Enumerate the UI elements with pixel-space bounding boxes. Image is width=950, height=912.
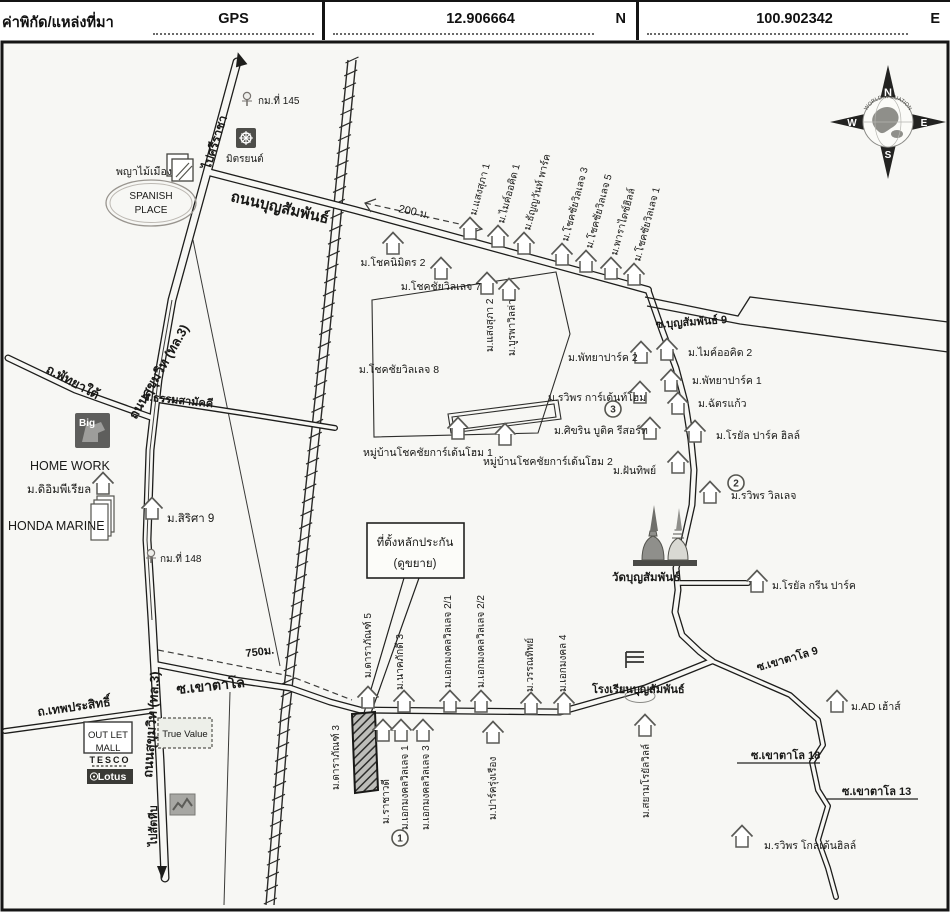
map-label: กม.ที่ 148 — [160, 551, 202, 565]
map-label: PLACE — [135, 205, 168, 216]
map-label: Lotus — [98, 771, 127, 783]
map-label: ม.ดิอิมพีเรียล — [27, 483, 91, 496]
map-label: SPANISH — [129, 191, 172, 202]
subject-callout-box: ที่ตั้งหลักประกัน(ดูขยาย) — [367, 523, 464, 578]
map-label: OUT LET — [88, 730, 128, 741]
appraisal-map-page: ค่าพิกัด/แหล่งที่มา GPS 12.906664 N 100.… — [0, 0, 950, 912]
map-label: ม.ดาราภัณฑ์ 5 — [362, 613, 374, 678]
map-label: กม.ที่ 145 — [258, 93, 300, 107]
map-label: ม.เอกมงคลวิลเลจ 3 — [421, 745, 432, 830]
map-label: ม.พัทยาปาร์ค 1 — [692, 374, 762, 387]
map-label: ม.รวิพร โกลเด้นฮิลล์ — [764, 839, 856, 852]
map-label: โรงเรียนบุญสัมพันธ์ — [591, 682, 685, 697]
map-label: ม.ไมค์ออคิด 2 — [688, 346, 752, 359]
map-label: ม.นาคภักดี 3 — [394, 634, 406, 690]
map-label: ม.ฝันทิพย์ — [613, 464, 656, 477]
circled-marker-3: 3 — [605, 401, 621, 417]
map-label: ม.ศิขริน บูติค รีสอร์ท — [554, 424, 648, 437]
map-label: ม.เอกมงคลวิลเลจ 2/2 — [476, 595, 487, 688]
map-label: TESCO — [89, 755, 130, 765]
map-label: ม.สยามโรยัลวิลล์ — [639, 744, 652, 818]
dotted-line — [333, 33, 594, 35]
map-canvas: N S W E WORLD VALUATION ไปศรีราชากม.ที่ … — [0, 40, 950, 912]
coordinates-header: ค่าพิกัด/แหล่งที่มา GPS 12.906664 N 100.… — [0, 0, 950, 40]
map-label: Big — [79, 418, 95, 429]
longitude-cell: 100.902342 E — [639, 2, 950, 40]
map-label: ม.โชคชัยวิลเลจ 7 — [401, 280, 481, 293]
map-label: ซ.เขาตาโล 18 — [751, 748, 820, 762]
map-label: มิตรยนต์ — [226, 153, 264, 165]
gps-cell: GPS — [145, 2, 322, 40]
map-label: MALL — [96, 743, 121, 754]
map-label: ไปสัตหีบ — [146, 805, 160, 848]
map-label: ม.เอกมงคลวิลเลจ 1 — [400, 745, 411, 830]
map-label: วัดบุญสัมพันธ์ — [612, 570, 680, 585]
map-label: ม.ราชาวดี — [380, 779, 392, 824]
map-label: ม.โรยัล ปาร์ค ฮิลล์ — [716, 429, 800, 442]
callout-line1: ที่ตั้งหลักประกัน — [377, 534, 454, 549]
map-label: ม.พัทยาปาร์ค 2 — [568, 351, 638, 364]
map-label: ม.โชคนิมิตร 2 — [361, 256, 426, 269]
compass-s-letter: S — [885, 150, 892, 161]
sketch-map: N S W E WORLD VALUATION ไปศรีราชากม.ที่ … — [0, 40, 950, 912]
map-label: ม.โรยัล กรีน ปาร์ค — [772, 579, 856, 592]
globe-continent — [891, 130, 903, 138]
circled-marker-2: 2 — [728, 475, 744, 491]
map-label: ม.แสงสุภา 2 — [485, 298, 496, 352]
gps-label: GPS — [145, 2, 322, 27]
latitude-direction: N — [616, 11, 626, 27]
compass-w-letter: W — [847, 118, 857, 129]
honda-marine-building-icon — [91, 496, 114, 540]
map-label: หมู่บ้านโชคชัยการ์เด้นโฮม 1 — [363, 446, 493, 459]
map-label: ม.รวิพร การ์เด้นท์โฮม — [548, 391, 646, 404]
map-label: ม.AD เฮ้าส์ — [851, 700, 901, 713]
map-label: ม.รวิพร วิลเลจ — [731, 490, 796, 502]
map-label: ม.เอกมงคลวิลเลจ 2/1 — [443, 595, 454, 688]
latitude-cell: 12.906664 N — [325, 2, 636, 40]
map-label: True Value — [162, 729, 207, 740]
map-label: HOME WORK — [30, 459, 111, 473]
longitude-direction: E — [930, 11, 940, 27]
map-label: ม.ปาร์ครุ่งเรือง — [487, 757, 499, 820]
coords-title: ค่าพิกัด/แหล่งที่มา — [0, 2, 145, 34]
map-label: ม.โชคชัยวิลเลจ 8 — [359, 363, 439, 376]
map-label: HONDA MARINE — [8, 519, 105, 533]
map-label: หมู่บ้านโชคชัยการ์เด้นโฮม 2 — [483, 455, 613, 468]
map-label: ซ.เขาตาโล 13 — [842, 784, 911, 798]
dotted-line — [647, 33, 908, 35]
subject-parcel — [352, 712, 378, 793]
callout-line2: (ดูขยาย) — [394, 558, 437, 570]
map-label: ม.สิริศา 9 — [167, 512, 214, 525]
latitude-value: 12.906664 — [325, 2, 636, 27]
map-label: พญาไม้เมือง — [116, 165, 172, 178]
dotted-line — [153, 33, 314, 35]
map-label: ม.เอกมงคล 4 — [558, 634, 569, 692]
photo-thumbnail — [170, 794, 195, 815]
compass-e-letter: E — [921, 118, 928, 129]
svg-text:1: 1 — [397, 834, 403, 845]
map-label: ม.ดาราภัณฑ์ 3 — [330, 725, 342, 790]
coords-title-cell: ค่าพิกัด/แหล่งที่มา — [0, 2, 145, 40]
dealer-logo-icon — [236, 128, 256, 148]
map-label: ม.บูรพาวิลล่า — [507, 299, 518, 356]
svg-text:2: 2 — [733, 479, 739, 490]
longitude-value: 100.902342 — [639, 2, 950, 27]
svg-text:3: 3 — [610, 405, 616, 416]
map-label: ม.ฉัตรแก้ว — [698, 398, 747, 410]
circled-marker-1: 1 — [392, 830, 408, 846]
map-label: ม.วรรณทิพย์ — [524, 638, 536, 692]
